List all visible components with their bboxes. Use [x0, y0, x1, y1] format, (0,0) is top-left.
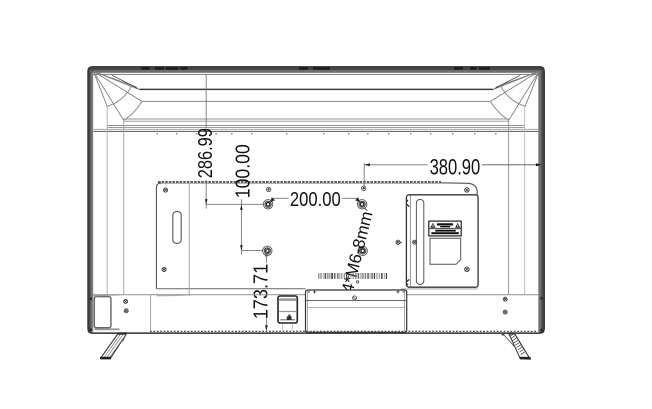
svg-text:286.99: 286.99 [194, 128, 217, 178]
svg-text:100.00: 100.00 [231, 144, 254, 198]
svg-text:200.00: 200.00 [290, 188, 341, 211]
svg-text:380.90: 380.90 [430, 154, 481, 179]
svg-text:173.71: 173.71 [249, 264, 272, 320]
